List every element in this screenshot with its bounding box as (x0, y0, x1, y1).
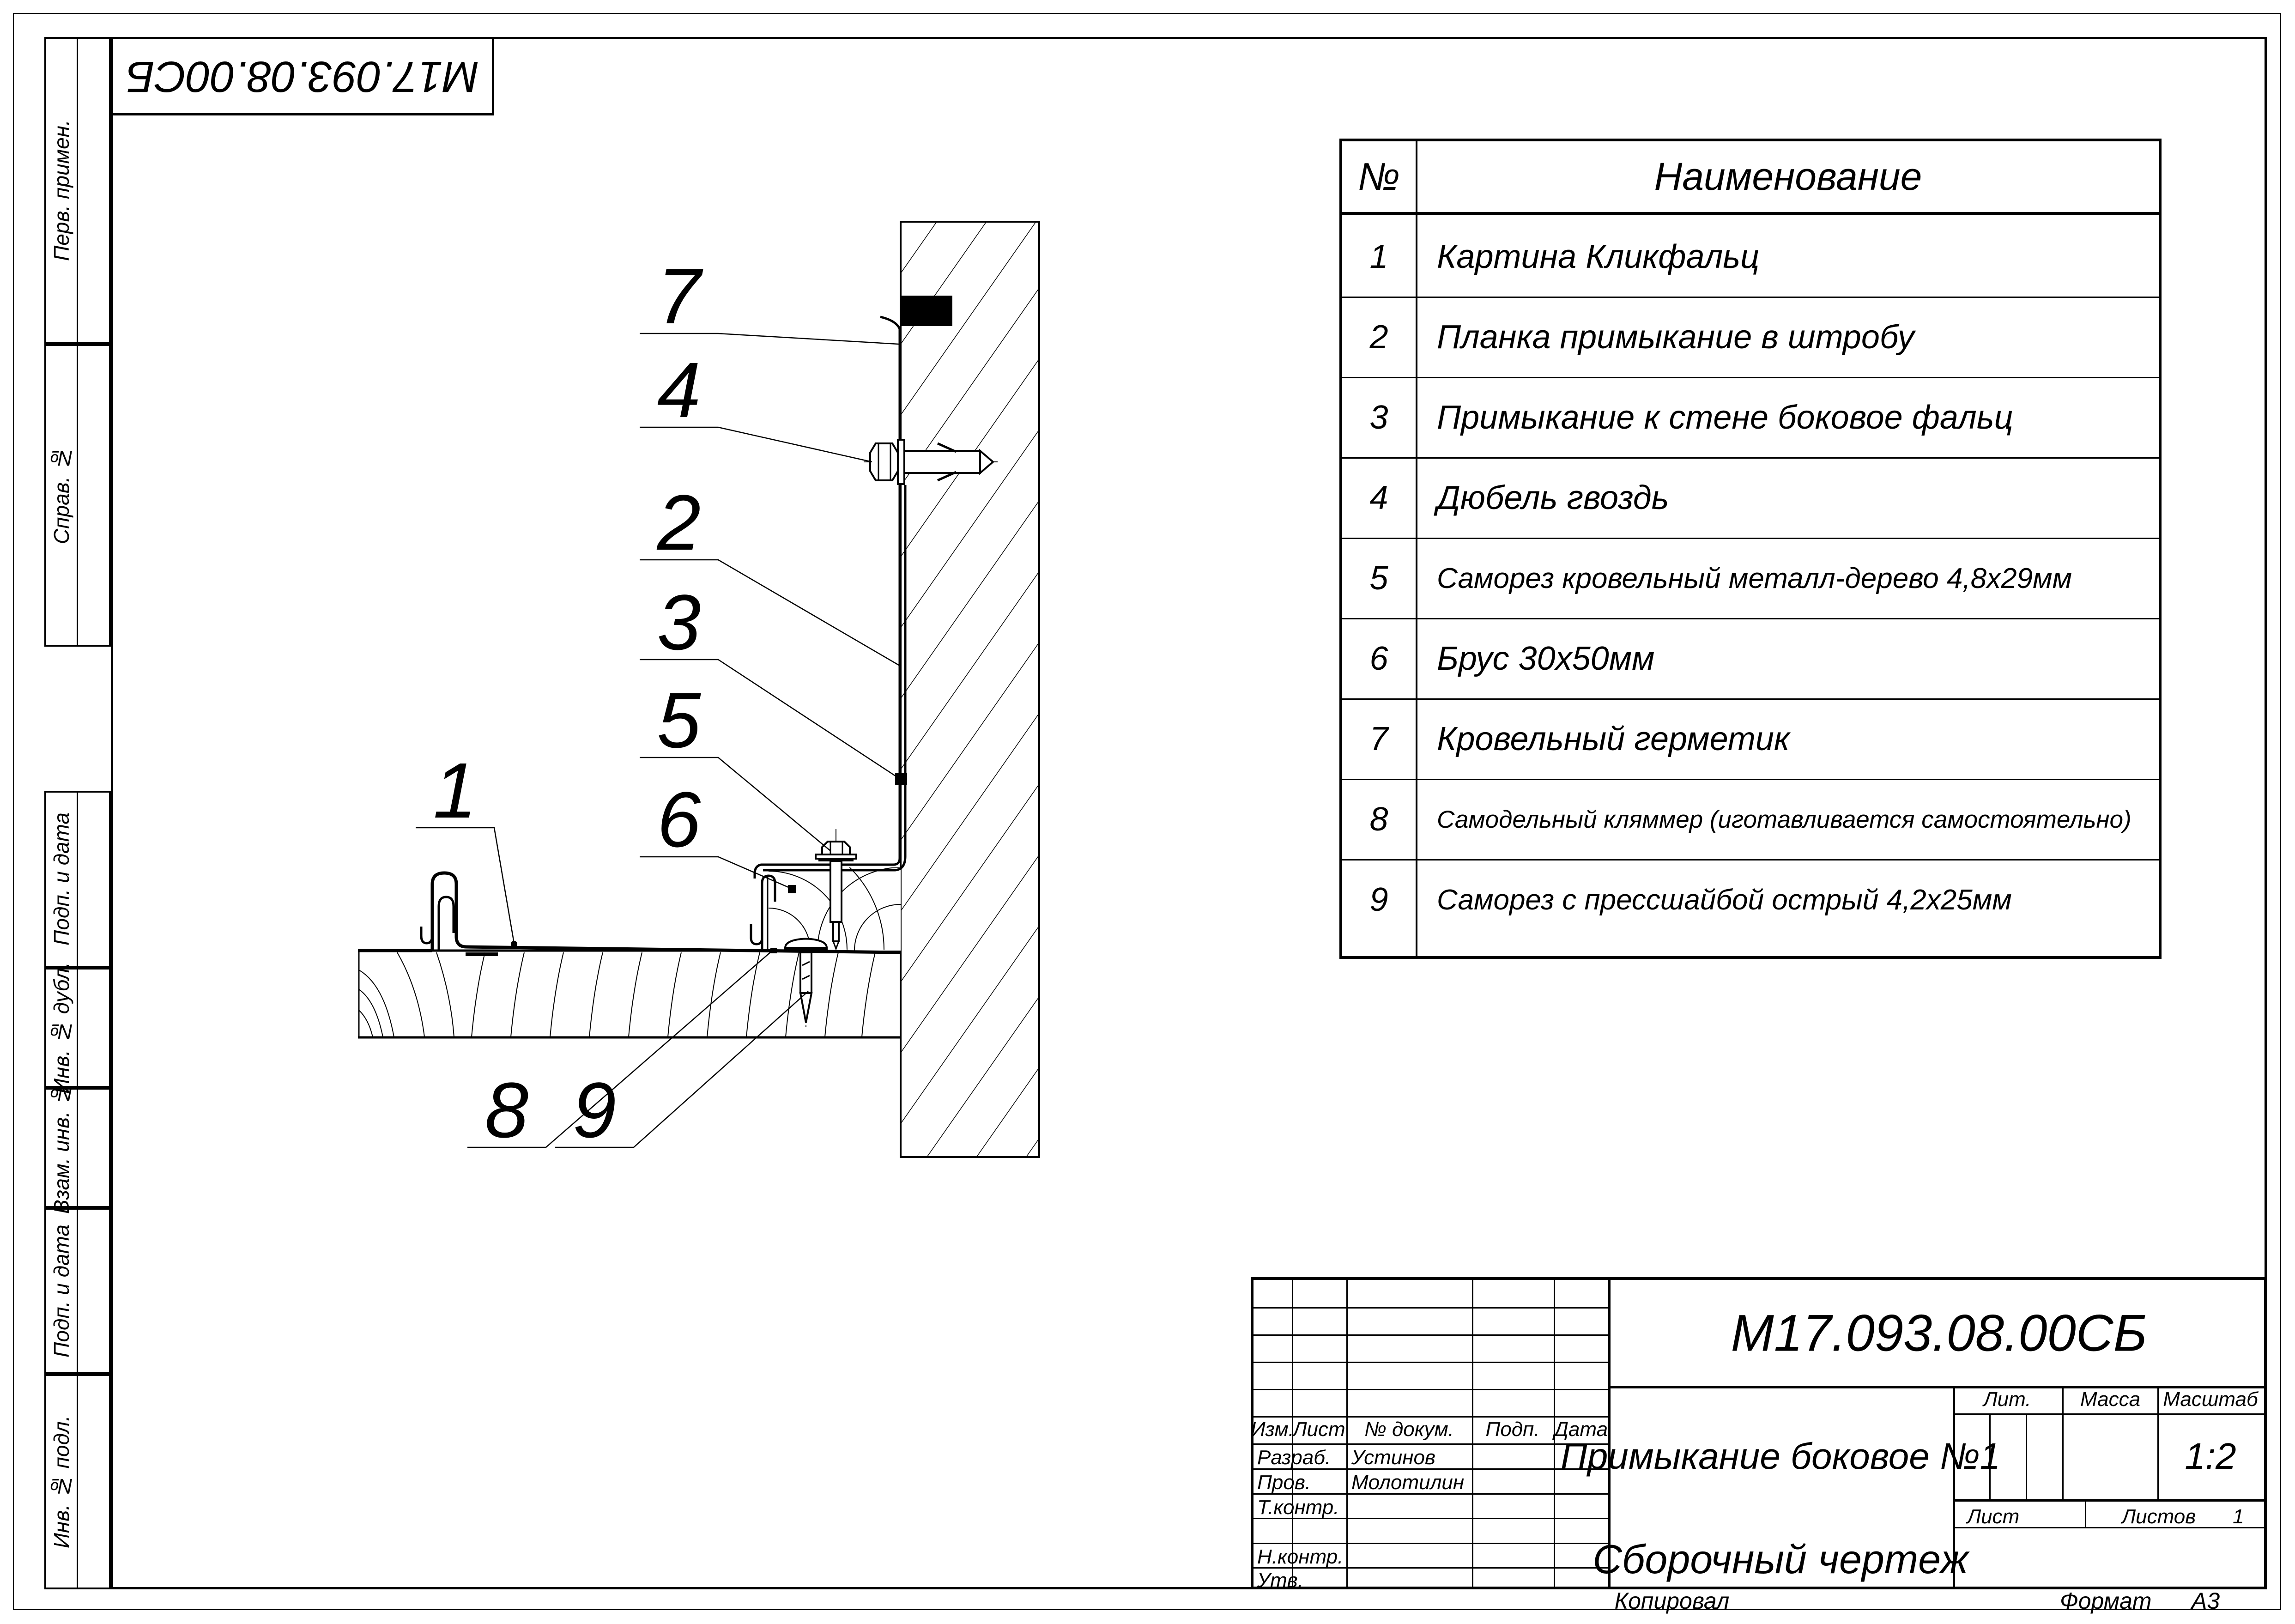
margin-label: Инв. № дубл. (45, 970, 78, 1086)
tb-label-massa: Масса (2080, 1388, 2140, 1411)
top-stamp-box: М17.093.08.00СБ (111, 37, 494, 115)
parts-table-header-num: № (1342, 141, 1416, 212)
parts-table-rows: 1 Картина Кликфальц 2 Планка примыкание … (1342, 218, 2159, 941)
callout-9: 9 (573, 1067, 617, 1154)
parts-table-header-name: Наименование (1417, 141, 2159, 212)
table-row: 5 Саморез кровельный металл-дерево 4,8х2… (1342, 539, 2159, 619)
tb-title: Примыкание боковое №1 (1561, 1435, 2000, 1478)
margin-cell-inv-dubl: Инв. № дубл. (44, 968, 111, 1088)
roof-sealant (902, 296, 952, 326)
callout-8: 8 (485, 1067, 529, 1154)
table-row: 3 Примыкание к стене боковое фальц (1342, 378, 2159, 459)
table-row: 9 Саморез с прессшайбой острый 4,2х25мм (1342, 860, 2159, 941)
margin-label: Подп. и дата (45, 1210, 78, 1372)
tb-value-razrab: Устинов (1351, 1446, 1435, 1469)
tb-label-nkontr: Н.контр. (1257, 1545, 1343, 1569)
tb-value-prov: Молотилин (1351, 1471, 1464, 1494)
callout-1: 1 (433, 747, 477, 835)
dowel-hex-head (870, 443, 898, 480)
parts-table: № Наименование 1 Картина Кликфальц 2 Пла… (1339, 139, 2162, 959)
callout-4: 4 (657, 346, 701, 434)
top-stamp-number: М17.093.08.00СБ (126, 51, 479, 102)
tb-scale-value: 1:2 (2185, 1435, 2236, 1478)
tb-label-list2: Лист (1967, 1505, 2019, 1528)
tb-label-prov: Пров. (1257, 1471, 1311, 1494)
table-row: 4 Дюбель гвоздь (1342, 459, 2159, 539)
tb-label-lit: Лит. (1983, 1388, 2031, 1411)
wall-section (901, 222, 1039, 1157)
margin-label: Перв. примен. (45, 39, 78, 342)
table-row: 7 Кровельный герметик (1342, 700, 2159, 780)
callout-6: 6 (657, 776, 701, 864)
tb-label-utv: Утв. (1257, 1569, 1303, 1592)
table-row: 8 Самодельный кляммер (иготавливается са… (1342, 780, 2159, 860)
callout-2: 2 (657, 479, 701, 567)
title-block: Изм. Лист № докум. Подп. Дата Разраб. Ус… (1251, 1277, 2267, 1589)
drawing-sheet: М17.093.08.00СБ Перв. примен. Справ. № П… (0, 0, 2295, 1624)
tb-label-list: Лист (1293, 1418, 1345, 1441)
footer-format-value: А3 (2192, 1591, 2220, 1611)
margin-cell-vzam-inv: Взам. инв. № (44, 1088, 111, 1208)
margin-cell-podp-data-2: Подп. и дата (44, 1208, 111, 1374)
clip-base-mark (770, 948, 777, 953)
margin-cell-perv-primen: Перв. примен. (44, 37, 111, 344)
parts-table-header: № Наименование (1342, 141, 2159, 215)
table-row: 1 Картина Кликфальц (1342, 218, 2159, 298)
tb-doc-type: Сборочный чертеж (1593, 1536, 1968, 1583)
tb-label-izm: Изм. (1251, 1418, 1294, 1441)
wall-flashing (755, 317, 907, 879)
tb-label-tkontr: Т.контр. (1257, 1496, 1339, 1519)
callout-3: 3 (657, 579, 701, 667)
flashing-end-mark (895, 773, 907, 785)
tb-sheets-value: 1 (2233, 1505, 2244, 1528)
footer-kopiroval: Копировал (1580, 1591, 1764, 1611)
clip-tab-mark (788, 885, 796, 893)
tb-label-podp: Подп. (1485, 1418, 1539, 1441)
tb-label-listov: Листов (2122, 1505, 2196, 1528)
tb-label-dokum: № докум. (1364, 1418, 1454, 1441)
assembly-drawing: 7 4 2 3 5 6 1 8 9 (277, 162, 1270, 1224)
callout-5: 5 (657, 677, 701, 764)
footer-format-label: Формат (2060, 1591, 2152, 1611)
table-row: 6 Брус 30х50мм (1342, 619, 2159, 700)
margin-cell-inv-podl: Инв. № подл. (44, 1374, 111, 1589)
tb-label-razrab: Разраб. (1257, 1446, 1331, 1469)
callout-7: 7 (657, 253, 703, 340)
margin-label: Инв. № подл. (45, 1376, 78, 1588)
wood-plank-base (358, 951, 901, 1037)
margin-cell-podp-data-1: Подп. и дата (44, 791, 111, 968)
table-row: 2 Планка примыкание в штробу (1342, 298, 2159, 378)
margin-label: Подп. и дата (45, 793, 78, 966)
margin-cell-sprav-no: Справ. № (44, 344, 111, 647)
tb-label-masshtab: Масштаб (2163, 1388, 2258, 1411)
margin-label: Взам. инв. № (45, 1090, 78, 1206)
margin-label: Справ. № (45, 346, 78, 645)
tb-doc-number: М17.093.08.00СБ (1731, 1303, 2147, 1363)
